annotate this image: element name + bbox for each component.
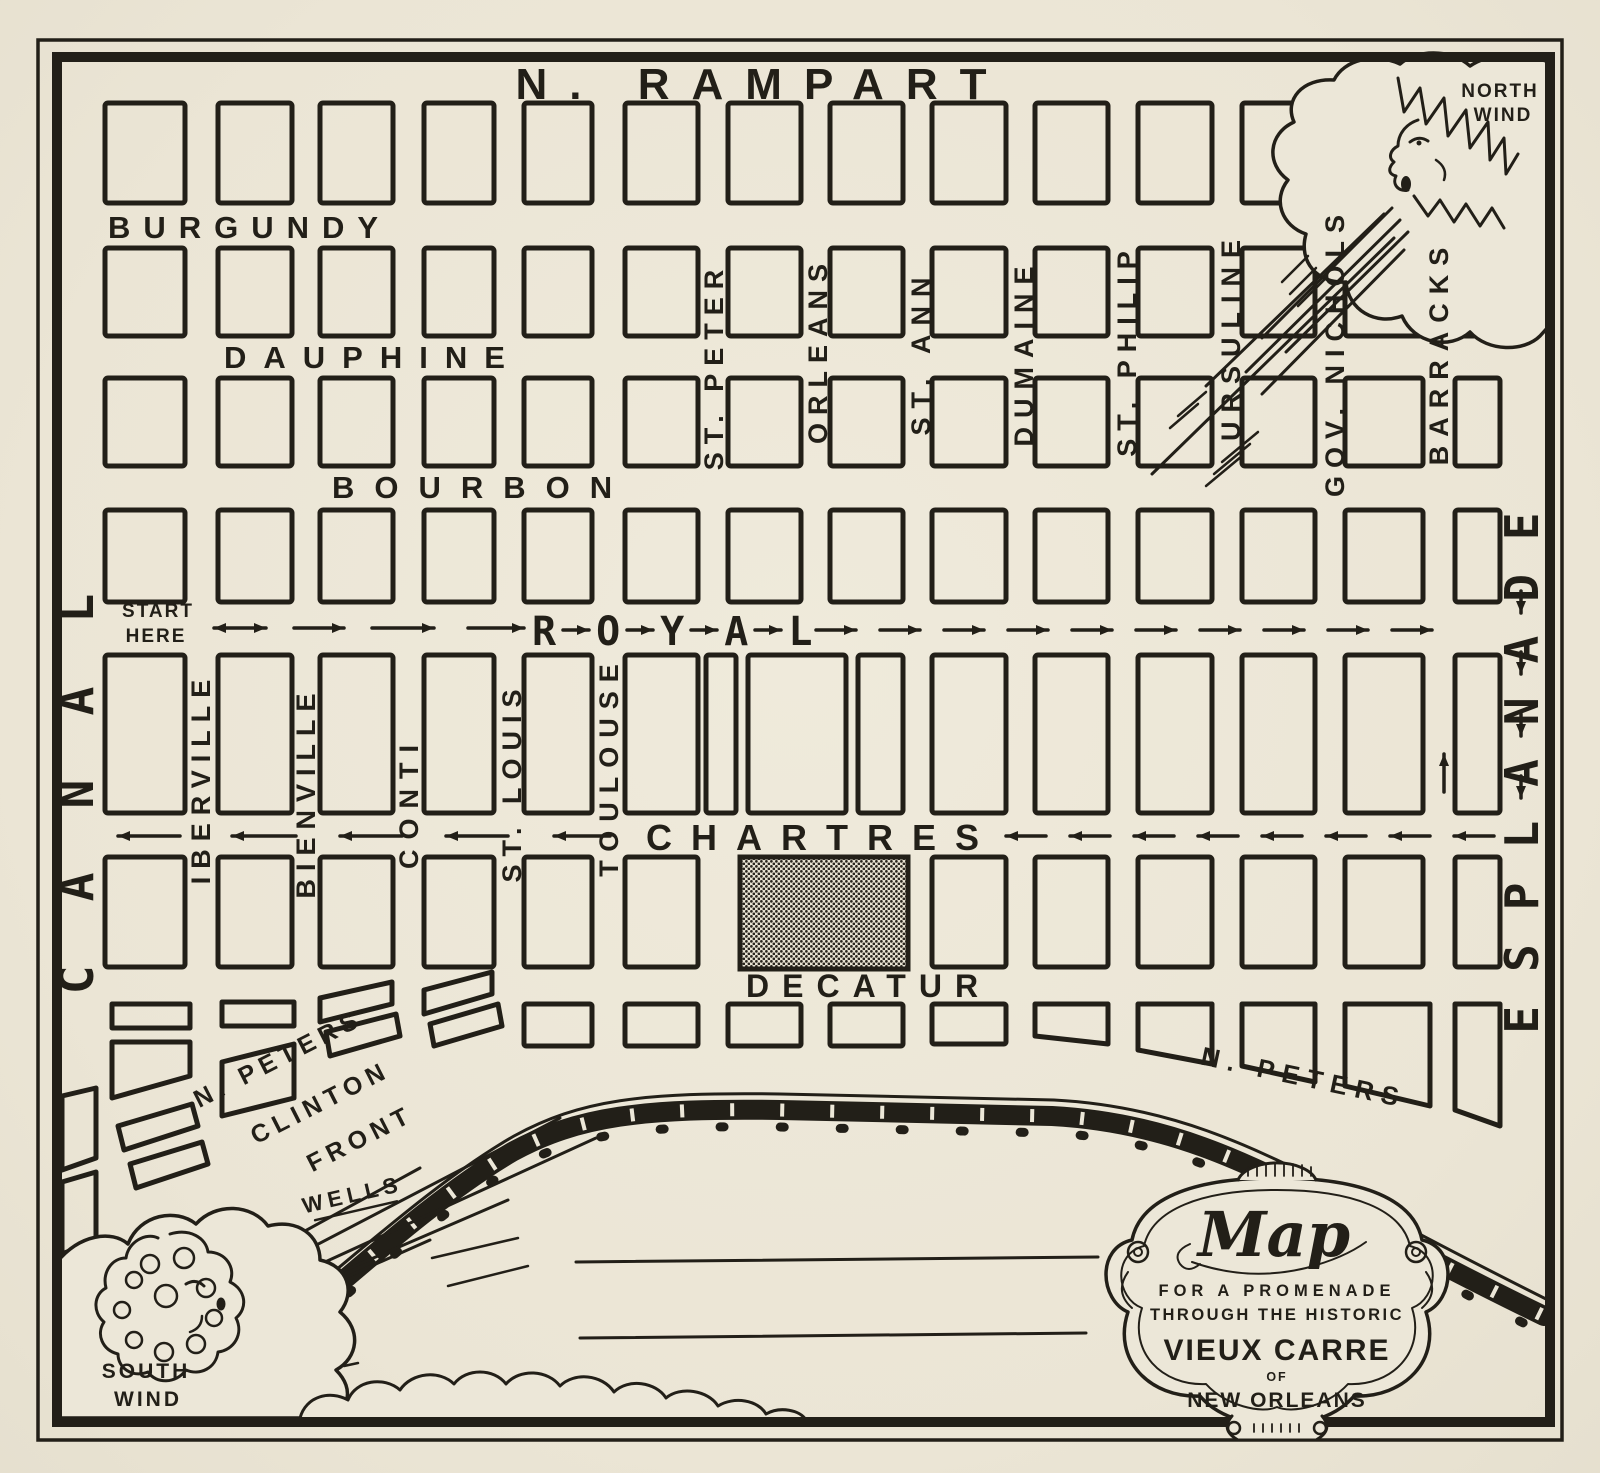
city-block — [105, 510, 185, 602]
city-block — [1035, 857, 1108, 967]
street-label-burgundy: BURGUNDY — [108, 210, 391, 245]
city-block — [830, 510, 903, 602]
city-block — [706, 655, 736, 813]
city-block — [1345, 857, 1423, 967]
south-wind-mouth — [217, 1298, 226, 1311]
city-block — [320, 103, 393, 203]
cartouche-title-script: Map — [1196, 1198, 1350, 1271]
jackson-square-shaded-block — [740, 857, 908, 969]
city-block — [932, 510, 1006, 602]
city-block — [218, 510, 292, 602]
street-label-wells-group: WELLS — [300, 1171, 406, 1222]
cartouche-line4: OF — [1266, 1370, 1287, 1384]
city-block — [728, 378, 801, 466]
city-block — [728, 1004, 801, 1046]
river-lines — [576, 1257, 1098, 1338]
city-block — [320, 510, 393, 602]
city-block — [858, 655, 903, 813]
street-label-st-peter: ST. PETER — [699, 262, 729, 471]
street-label-toulouse: TOULOUSE — [594, 655, 624, 877]
south-wind-figure: SOUTH WIND — [56, 1118, 806, 1420]
city-block — [830, 378, 903, 466]
cartouche-line1: FOR A PROMENADE — [1159, 1282, 1396, 1300]
north-wind-pupil — [1417, 141, 1422, 146]
start-here-marker-line1: START — [122, 601, 194, 622]
north-wind-label-line1: NORTH — [1461, 81, 1539, 102]
south-wind-label-line2: WIND — [114, 1388, 182, 1411]
street-label-st-philip: ST. PHILIP — [1112, 243, 1142, 457]
street-label-bourbon: BOURBON — [332, 470, 632, 505]
street-label-chartres: CHARTRES — [646, 817, 998, 858]
city-block — [218, 655, 292, 813]
street-label-decatur: DECATUR — [746, 968, 991, 1004]
city-block — [105, 248, 185, 336]
north-wind-mouth — [1401, 176, 1411, 192]
city-block — [932, 857, 1006, 967]
city-block — [1138, 103, 1212, 203]
city-block — [728, 248, 801, 336]
city-block — [105, 655, 185, 813]
street-label-st-louis: ST. LOUIS — [497, 681, 527, 882]
city-block — [320, 248, 393, 336]
city-block — [830, 103, 903, 203]
city-block — [625, 248, 698, 336]
city-block — [830, 1004, 903, 1046]
street-label-ursuline: URSULINE — [1216, 231, 1246, 441]
street-label-barracks: BARRACKS — [1424, 239, 1454, 466]
city-block — [1455, 378, 1500, 466]
city-block — [112, 1004, 190, 1028]
street-label-royal: ROYAL — [532, 609, 852, 655]
street-label-n-rampart: N. RAMPART — [516, 60, 1009, 109]
city-block — [524, 510, 592, 602]
city-block — [748, 655, 846, 813]
south-wind-label-line1: SOUTH — [102, 1360, 191, 1383]
street-label-dauphine: DAUPHINE — [224, 340, 522, 375]
street-label-gov-nichols: GOV. NICHOLS — [1320, 207, 1350, 497]
city-block — [320, 378, 393, 466]
city-block — [1138, 857, 1212, 967]
city-block — [932, 1004, 1006, 1044]
city-block — [105, 103, 185, 203]
street-label-bienville: BIENVILLE — [291, 685, 321, 898]
city-block — [105, 378, 185, 466]
city-block — [1035, 103, 1108, 203]
city-block — [218, 378, 292, 466]
city-block — [1138, 510, 1212, 602]
city-block — [1035, 655, 1108, 813]
city-block — [728, 510, 801, 602]
city-block — [932, 655, 1006, 813]
city-block — [424, 248, 494, 336]
city-block — [1455, 1004, 1500, 1126]
south-wind-cloud-puffs — [300, 1372, 806, 1420]
city-block — [524, 378, 592, 466]
map-canvas: NORTH WIND SOUTH WIND N. — [0, 0, 1600, 1473]
cartouche-line2: THROUGH THE HISTORIC — [1150, 1306, 1404, 1324]
city-block — [524, 1004, 592, 1046]
city-block — [524, 103, 592, 203]
city-block — [218, 248, 292, 336]
street-label-st-ann: ST. ANN — [906, 268, 936, 435]
city-block — [1035, 248, 1108, 336]
city-block — [62, 1088, 96, 1170]
start-here-marker-line2: HERE — [126, 626, 187, 647]
city-block — [1242, 510, 1315, 602]
city-block — [218, 857, 292, 967]
city-block — [424, 510, 494, 602]
city-block — [118, 1104, 198, 1150]
city-block — [1455, 655, 1500, 813]
cartouche-bottom-scroll — [1227, 1416, 1327, 1440]
city-block — [1242, 857, 1315, 967]
city-block — [625, 103, 698, 203]
cartouche-line3: VIEUX CARRE — [1163, 1334, 1390, 1367]
city-block — [130, 1142, 208, 1188]
city-block — [728, 103, 801, 203]
city-block — [218, 103, 292, 203]
city-block — [1138, 248, 1212, 336]
city-block — [1455, 857, 1500, 967]
cartouche-line5: NEW ORLEANS — [1187, 1389, 1367, 1412]
city-block — [320, 655, 393, 813]
city-block — [524, 248, 592, 336]
city-block — [625, 857, 698, 967]
city-block — [625, 1004, 698, 1046]
street-label-iberville: IBERVILLE — [186, 672, 216, 885]
city-block — [222, 1002, 294, 1026]
city-block — [932, 103, 1006, 203]
city-block — [1242, 655, 1315, 813]
city-block — [1455, 510, 1500, 602]
city-block — [524, 857, 592, 967]
city-block — [830, 248, 903, 336]
city-block — [932, 378, 1006, 466]
city-block — [1035, 1004, 1108, 1044]
city-block — [1035, 378, 1108, 466]
vieux-carre-promenade-map: NORTH WIND SOUTH WIND N. — [0, 0, 1600, 1473]
cartouche: Map FOR A PROMENADE THROUGH THE HISTORIC… — [1106, 1163, 1448, 1440]
city-block — [1035, 510, 1108, 602]
city-block — [112, 1042, 190, 1098]
street-label-dumaine: DUMAINE — [1009, 258, 1039, 447]
city-block — [1345, 378, 1423, 466]
city-block — [424, 103, 494, 203]
street-label-orleans: ORLEANS — [803, 256, 833, 444]
south-wind-cloud — [57, 1208, 355, 1418]
city-block — [1345, 655, 1423, 813]
street-label-n-peters-right: N. PETERS — [1198, 1041, 1409, 1114]
city-block — [1345, 510, 1423, 602]
city-block — [105, 857, 185, 967]
street-label-esplanade: ESPLANADE — [1495, 478, 1549, 1033]
city-block — [625, 510, 698, 602]
city-block — [424, 655, 494, 813]
city-block — [1242, 378, 1315, 466]
city-block — [625, 378, 698, 466]
city-block — [625, 655, 698, 813]
city-block — [524, 655, 592, 813]
city-block — [424, 857, 494, 967]
city-block — [320, 857, 393, 967]
street-label-conti: CONTI — [394, 735, 424, 869]
city-block — [1138, 655, 1212, 813]
city-block — [424, 378, 494, 466]
north-wind-label-line2: WIND — [1474, 105, 1533, 126]
city-block — [932, 248, 1006, 336]
